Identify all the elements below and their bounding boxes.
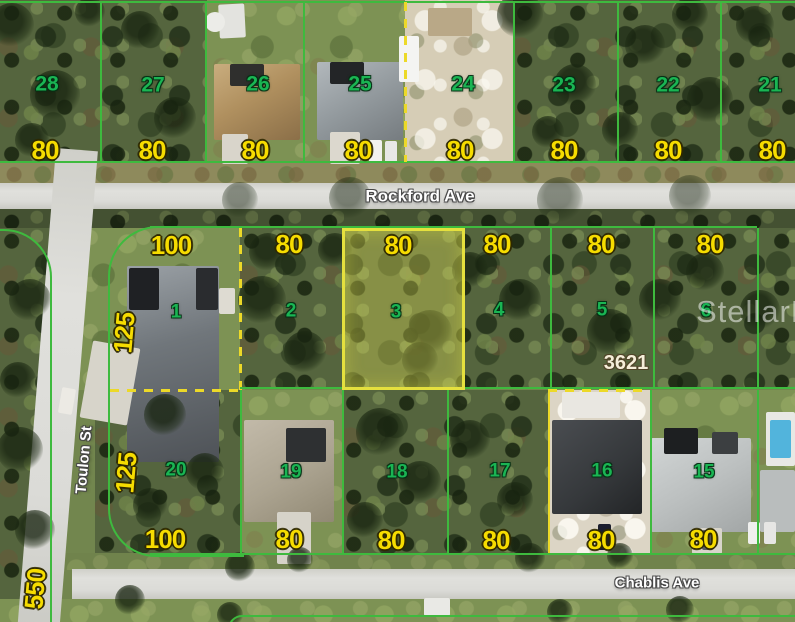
- lot-number: 24: [451, 74, 474, 95]
- parcel-line: [550, 228, 552, 387]
- lot-dimension: 80: [447, 137, 474, 163]
- construction-debris: [428, 8, 472, 36]
- parcel-line: [205, 2, 207, 162]
- tree-canopy: [284, 331, 326, 373]
- car: [764, 522, 776, 544]
- lot-number: 20: [165, 461, 186, 480]
- lot-dimension: 100: [145, 526, 185, 552]
- mls-watermark: StellarMLS: [696, 294, 795, 330]
- lot-dimension: 80: [32, 137, 59, 163]
- lot-number: 19: [280, 463, 301, 482]
- parcel-line: [0, 1, 795, 3]
- parcel-corner-south: [228, 615, 795, 622]
- carport-lot16: [562, 392, 620, 418]
- street-label-toulon: Toulon St: [74, 425, 95, 494]
- parcel-line: [617, 2, 619, 162]
- lot-number: 18: [386, 463, 407, 482]
- lot-number: 1: [171, 303, 182, 322]
- tree-canopy: [587, 309, 633, 355]
- parcel-line: [653, 228, 655, 387]
- lot-dimension: 80: [655, 137, 682, 163]
- parcel-line: [240, 390, 242, 553]
- parcel-line: [757, 390, 759, 553]
- lot-number: 21: [758, 75, 781, 96]
- parcel-line: [342, 390, 344, 553]
- parcel-line-dashed: [548, 389, 650, 392]
- water-tank: [205, 12, 225, 32]
- lot-dimension: 80: [697, 231, 724, 257]
- lot-dimension: 80: [276, 526, 303, 552]
- parcel-line-dashed: [404, 2, 407, 162]
- lot-number: 22: [656, 75, 679, 96]
- lot-dimension: 80: [588, 527, 615, 553]
- lot-number: 27: [141, 75, 164, 96]
- lot-number-subject: 3: [391, 303, 402, 322]
- tree-canopy: [499, 279, 541, 321]
- aerial-parcel-map: 28 80 27 80 26 80 25 80 24 80 23 80 22 8…: [0, 0, 795, 622]
- house-lot15-roof-section: [664, 428, 698, 454]
- lot-number: 2: [286, 302, 297, 321]
- lot-number: 23: [552, 75, 575, 96]
- parcel-line: [303, 2, 305, 162]
- lot-dimension: 80: [484, 231, 511, 257]
- parcel-line: [100, 2, 102, 162]
- tree-canopy: [497, 482, 533, 518]
- lot-dimension: 80: [551, 137, 578, 163]
- lot-dimension: 100: [151, 232, 191, 258]
- car: [385, 141, 397, 163]
- tree-canopy: [736, 6, 774, 44]
- tree-canopy: [222, 182, 258, 218]
- lot-number: 5: [597, 301, 608, 320]
- lot-dimension: 80: [483, 527, 510, 553]
- lot-dimension-side: 125: [109, 312, 138, 355]
- house-lot15-roof-section: [712, 432, 738, 454]
- lot-number: 28: [35, 74, 58, 95]
- tree-canopy: [154, 97, 196, 139]
- lot-dimension: 80: [385, 232, 412, 258]
- parcel-line: [650, 390, 652, 553]
- pool: [770, 420, 791, 458]
- tree-canopy: [639, 279, 681, 321]
- lot-number: 16: [591, 462, 612, 481]
- street-label-rockford: Rockford Ave: [365, 188, 474, 205]
- lot-dimension: 80: [759, 137, 786, 163]
- lot-dimension-side: 125: [111, 452, 140, 495]
- lot-dimension: 80: [345, 137, 372, 163]
- tree-canopy: [121, 11, 159, 49]
- truck-lot24: [399, 36, 419, 82]
- lot-number: 17: [489, 462, 510, 481]
- lot-dimension: 80: [276, 231, 303, 257]
- tree-canopy: [356, 408, 404, 456]
- parcel-line: [447, 390, 449, 553]
- address-label: 3621: [604, 353, 649, 373]
- lot-dimension: 80: [378, 527, 405, 553]
- street-label-chablis: Chablis Ave: [615, 576, 700, 591]
- parcel-line-yellow: [548, 390, 550, 553]
- tree-canopy: [115, 585, 145, 615]
- lot-dimension: 80: [588, 231, 615, 257]
- parcel-line: [513, 2, 515, 162]
- tree-canopy: [687, 77, 733, 123]
- tree-canopy: [515, 543, 545, 573]
- lot-dimension: 80: [690, 526, 717, 552]
- parcel-line: [720, 2, 722, 162]
- tree-canopy: [537, 177, 583, 223]
- lot-number: 26: [246, 74, 269, 95]
- lot-number: 25: [348, 74, 371, 95]
- west-parcel-dimension: 550: [20, 568, 49, 611]
- parcel-corner-west: [0, 229, 52, 622]
- tree-canopy: [625, 25, 665, 65]
- parcel-line: [240, 387, 795, 389]
- tree-canopy: [238, 276, 286, 324]
- lot-number: 15: [693, 463, 714, 482]
- parcel-line-dashed: [239, 228, 242, 390]
- lot-dimension: 80: [242, 137, 269, 163]
- tree-canopy: [450, 420, 490, 460]
- truck-on-chablis: [424, 598, 450, 616]
- tree-canopy: [669, 175, 711, 217]
- tree-canopy: [602, 112, 638, 148]
- lot-dimension: 80: [139, 137, 166, 163]
- lot-number: 4: [494, 301, 505, 320]
- house-lot19-roof-section: [286, 428, 326, 462]
